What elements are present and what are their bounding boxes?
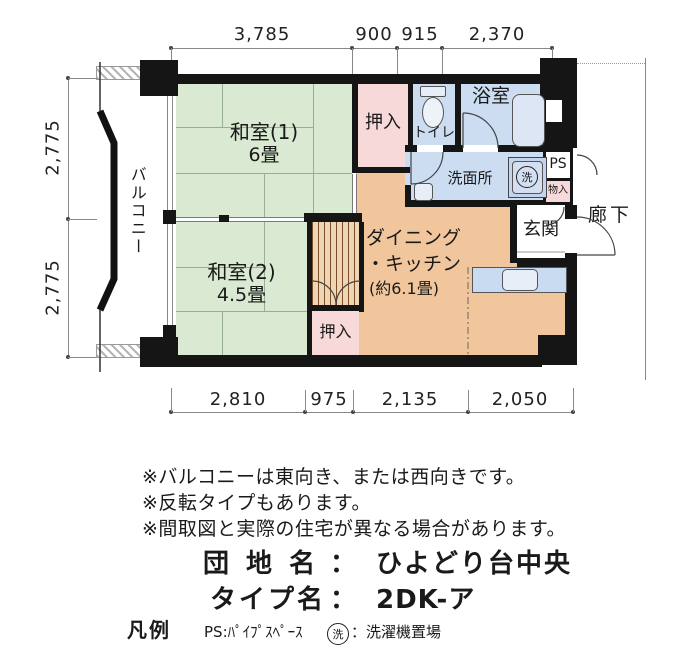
wall-post: [219, 215, 229, 222]
type-separator: ：: [330, 587, 356, 614]
washer-mark: 洗: [516, 166, 538, 188]
legend-washer-desc: ：洗濯機置場: [351, 625, 441, 641]
dim-ext: [442, 48, 443, 76]
type-value: 2DK-ア: [376, 587, 475, 614]
wall-bottom: [176, 355, 542, 367]
type-label: タイプ名: [210, 587, 326, 614]
door-opening-toilet: [417, 145, 443, 152]
corridor-label: 廊下: [588, 206, 632, 226]
dim-bottom-1: 2,810: [198, 391, 278, 410]
genkan-label: 玄関: [517, 221, 565, 240]
ps-door-arc: [577, 155, 597, 175]
dim-ext: [68, 219, 97, 220]
washitsu1-label: 和室(1): [176, 122, 352, 143]
dk-label-2: ・キッチン: [366, 255, 461, 275]
party-wall-hatch-bottom: [96, 344, 142, 358]
floor-plan-page: 3,785 900 915 2,370 2,810 975 2,135 2,05…: [0, 0, 700, 650]
dim-ext: [353, 390, 354, 412]
fusuma-track: [176, 217, 310, 218]
legend-ps-desc: PS:ﾊﾟｲﾌﾟｽﾍﾟｰｽ: [204, 625, 303, 641]
balcony-railing: [100, 111, 114, 310]
balcony-label: バルコニー: [128, 166, 145, 256]
corridor-line: [645, 58, 646, 380]
wall-post: [163, 210, 176, 224]
toilet-tank: [420, 86, 446, 97]
legend-title: 凡例: [127, 620, 171, 641]
dk-label-3: (約6.1畳): [369, 281, 439, 298]
dim-left-2: 2,775: [45, 247, 64, 327]
dim-ext: [573, 388, 574, 412]
dim-top-2: 900: [354, 26, 394, 45]
column-bottom-right: [538, 335, 577, 365]
party-wall-hatch-top: [96, 66, 142, 80]
danchi-value: ひよどり台中央: [376, 551, 572, 578]
dim-ext: [397, 48, 398, 76]
fusuma-track: [352, 174, 353, 218]
wall-oshiire-bottom: [352, 167, 410, 173]
dim-ext: [468, 390, 469, 412]
dim-bottom-2: 975: [309, 391, 349, 410]
tatami-line: [264, 173, 265, 218]
wall-strip-top: [310, 213, 362, 222]
toilet-label: トイレ: [407, 126, 461, 141]
note-line-2: ※反転タイプもあります。: [142, 490, 566, 516]
legend-washer-mark: 洗: [327, 623, 349, 645]
wall-door-jamb-top: [565, 205, 577, 219]
danchi-separator: ：: [330, 551, 356, 578]
wall-post: [163, 84, 176, 96]
front-door-opening: [565, 219, 577, 253]
oshiire-top-label: 押入: [352, 114, 414, 133]
dim-top-1: 3,785: [222, 26, 302, 45]
fusuma-track: [176, 221, 310, 222]
exterior-gap: [573, 148, 579, 207]
dim-line-bottom: [171, 412, 573, 413]
wall-strip-right: [359, 222, 364, 312]
dim-line-top: [171, 48, 552, 49]
tatami-line: [176, 311, 307, 312]
door-opening-bath: [463, 145, 498, 152]
wall-notch: [546, 100, 562, 122]
tatami-line: [222, 84, 223, 127]
wood-strip-floor: [312, 222, 359, 305]
kitchen-sink: [502, 269, 538, 291]
wall-washroom-left: [405, 185, 411, 200]
dim-ext: [305, 390, 306, 412]
dim-left-1: 2,775: [45, 107, 64, 187]
wall-top: [176, 74, 542, 84]
dk-label-1: ダイニング: [366, 229, 461, 249]
tatami-line: [222, 311, 223, 355]
storage-small-label: 物入: [546, 186, 570, 197]
dim-bottom-4: 2,050: [480, 391, 560, 410]
washroom-label: 洗面所: [430, 171, 510, 187]
wall-oshiire-b-top: [312, 305, 359, 311]
note-line-3: ※間取図と実際の住宅が異なる場合があります。: [142, 516, 566, 542]
column-bottom-left: [140, 337, 178, 367]
exterior-dotted-line: [577, 63, 645, 64]
washitsu2-label: 和室(2): [176, 262, 307, 283]
oshiire-bottom-label: 押入: [312, 324, 359, 341]
fusuma-track: [356, 174, 357, 218]
bath-label: 浴室: [461, 87, 521, 107]
dim-top-3: 915: [400, 26, 440, 45]
toilet-bowl: [422, 97, 444, 128]
washitsu1-size: 6畳: [176, 146, 352, 166]
washitsu2-size: 4.5畳: [176, 286, 307, 306]
wall-post: [163, 325, 176, 337]
note-line-1: ※バルコニーは東向き、または西向きです。: [142, 464, 566, 490]
ps-label: PS: [546, 157, 570, 172]
notes-block: ※バルコニーは東向き、または西向きです。 ※反転タイプもあります。 ※間取図と実…: [142, 464, 566, 542]
dim-top-4: 2,370: [457, 26, 537, 45]
dim-ext: [171, 388, 172, 412]
wall-genkan-left: [510, 205, 517, 263]
dim-ext: [352, 48, 353, 76]
danchi-label: 団 地 名: [203, 551, 319, 578]
dim-bottom-3: 2,135: [370, 391, 450, 410]
